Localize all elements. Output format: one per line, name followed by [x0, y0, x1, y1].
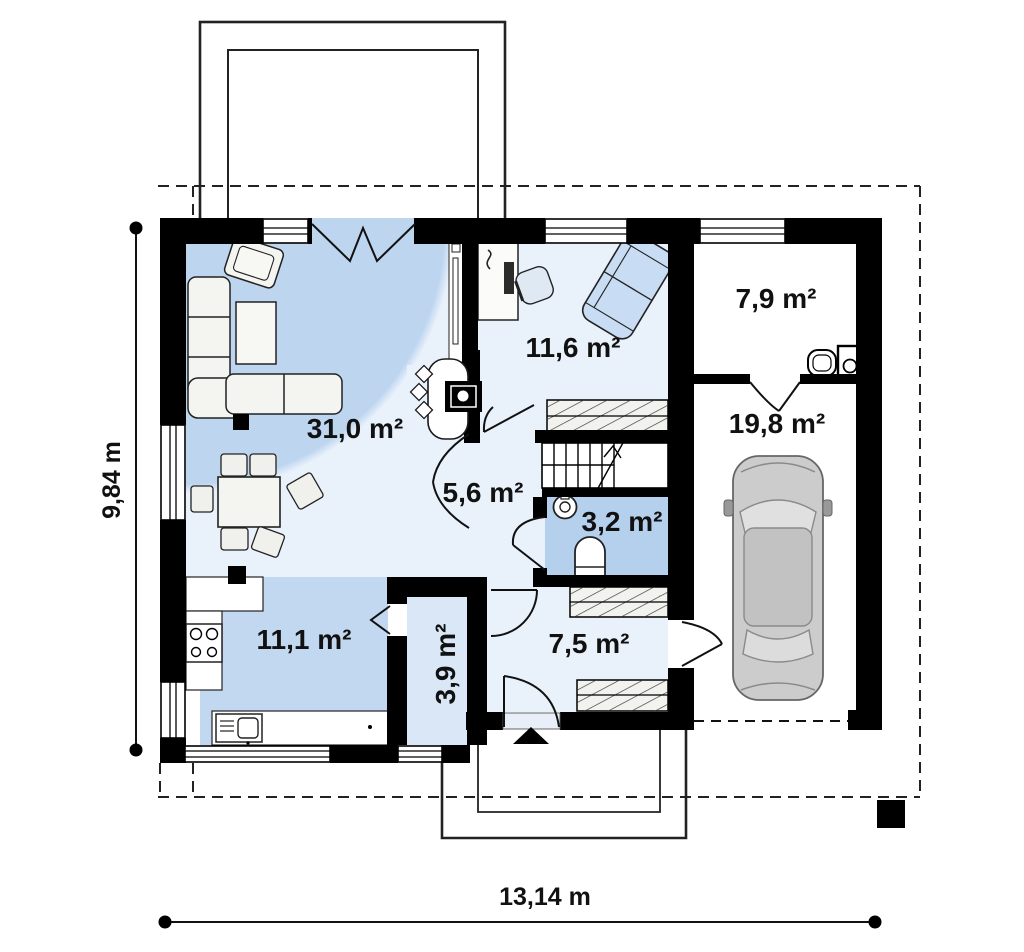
corridor-garage-door-icon — [682, 622, 722, 666]
toilet-icon — [575, 537, 605, 577]
window-pantry-bottom-icon — [398, 746, 442, 762]
floor-plan-page: 31,0 m² 11,6 m² 7,9 m² 19,8 m² 5,6 m² 3,… — [0, 0, 1024, 952]
wardrobe-corridor-north-icon — [570, 587, 668, 617]
window-kitchen-bottom-icon — [185, 746, 330, 762]
utility-garage-door-icon — [750, 382, 800, 411]
room-label-living: 31,0 m² — [307, 413, 404, 444]
terrace-outline — [200, 22, 505, 232]
coffee-table-icon — [236, 302, 276, 364]
wardrobe-office-icon — [547, 400, 668, 432]
site-pillar-square — [877, 800, 905, 828]
boiler-icon — [808, 346, 862, 376]
room-label-garage: 19,8 m² — [729, 408, 826, 439]
floor-plan-svg: 31,0 m² 11,6 m² 7,9 m² 19,8 m² 5,6 m² 3,… — [0, 0, 1024, 952]
dimension-left: 9,84 m — [98, 222, 143, 757]
room-label-corridor: 7,5 m² — [549, 628, 630, 659]
window-office-top-icon — [545, 219, 627, 243]
window-living-top-icon — [263, 219, 308, 243]
monitor-icon — [504, 262, 514, 294]
car-icon — [724, 456, 832, 700]
dimension-left-label: 9,84 m — [98, 441, 126, 519]
window-utility-top-icon — [700, 219, 785, 243]
kitchen-sink-icon — [216, 714, 262, 745]
room-label-wc: 3,2 m² — [582, 506, 663, 537]
window-living-left-icon — [161, 425, 185, 520]
room-label-utility: 7,9 m² — [736, 283, 817, 314]
room-label-office: 11,6 m² — [526, 332, 621, 363]
wardrobe-corridor-south-icon — [577, 680, 668, 711]
dimension-bottom: 13,14 m — [159, 883, 882, 929]
window-kitchen-left-icon — [161, 682, 185, 738]
entrance-porch — [442, 730, 686, 838]
counter-knob — [368, 725, 372, 729]
entry-marker-triangle — [513, 727, 549, 744]
stove-icon — [186, 624, 222, 662]
side-table-icon — [233, 414, 249, 430]
sink-icon — [554, 494, 577, 519]
room-label-pantry: 3,9 m² — [430, 624, 461, 705]
kitchen-counter-top — [186, 577, 263, 611]
stairs-icon — [542, 441, 668, 490]
tv-cabinet-icon — [449, 240, 463, 362]
dimension-bottom-label: 13,14 m — [499, 883, 591, 911]
room-label-hall: 5,6 m² — [443, 477, 524, 508]
room-label-kitchen: 11,1 m² — [257, 624, 352, 655]
